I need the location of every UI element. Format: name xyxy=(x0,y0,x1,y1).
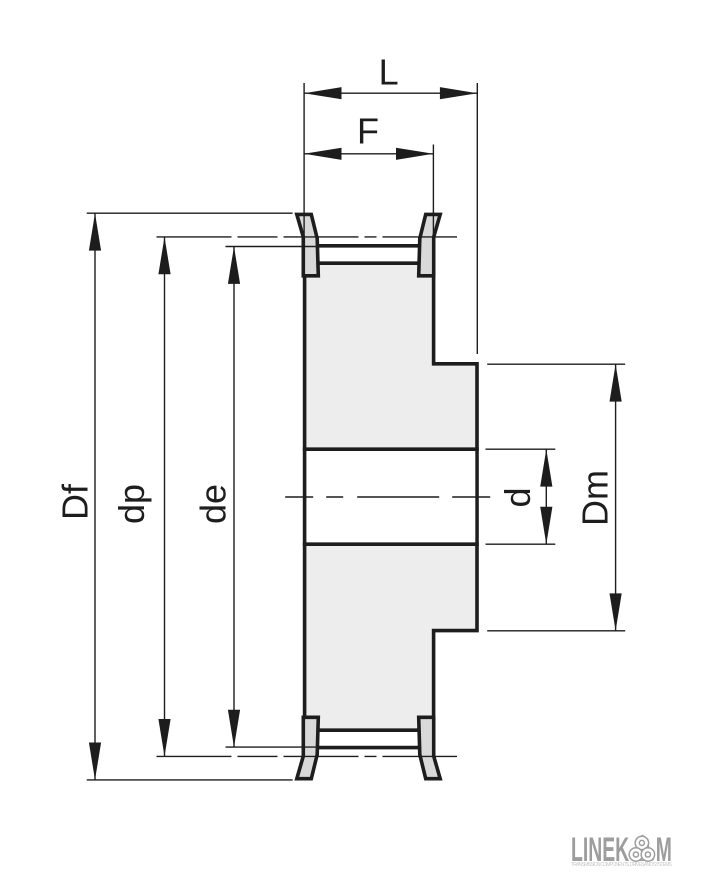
svg-text:d: d xyxy=(497,487,538,507)
svg-text:Dm: Dm xyxy=(575,470,616,526)
svg-text:dp: dp xyxy=(111,484,152,524)
svg-text:F: F xyxy=(357,111,379,152)
svg-text:de: de xyxy=(193,484,234,524)
svg-text:Df: Df xyxy=(55,483,96,520)
svg-text:L: L xyxy=(379,52,399,93)
svg-text:TRANSMISSION COMPONENTS, DRIVE: TRANSMISSION COMPONENTS, DRIVES AND SYST… xyxy=(571,862,673,868)
